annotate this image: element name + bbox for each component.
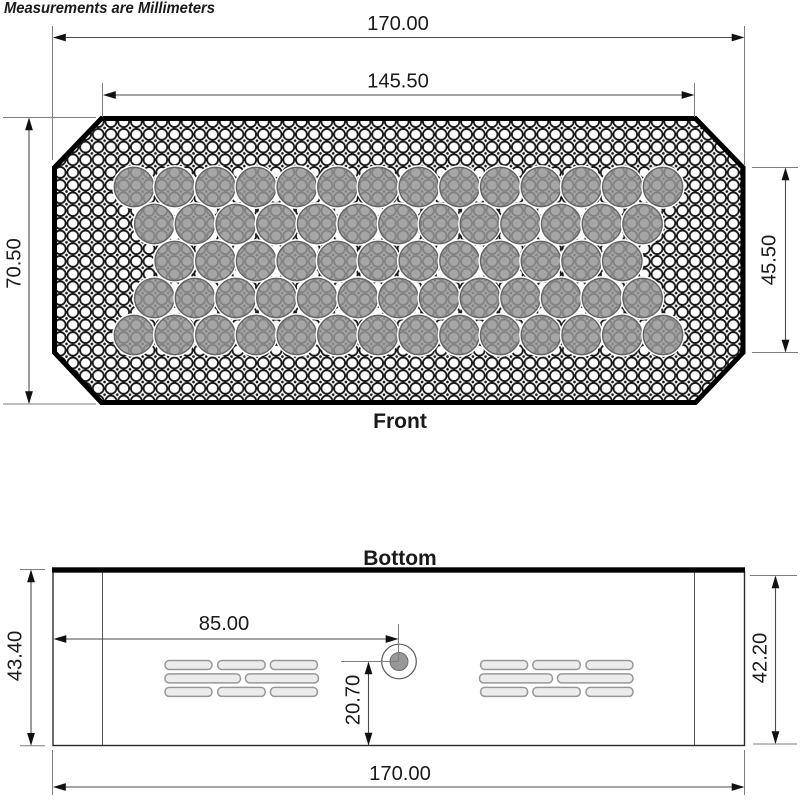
svg-text:45.50: 45.50 <box>759 235 781 286</box>
svg-text:170.00: 170.00 <box>369 763 431 785</box>
svg-text:170.00: 170.00 <box>367 13 429 35</box>
svg-text:Measurements are Millimeters: Measurements are Millimeters <box>4 0 215 17</box>
svg-text:42.20: 42.20 <box>750 633 772 684</box>
svg-text:85.00: 85.00 <box>199 613 250 635</box>
svg-text:Front: Front <box>373 410 427 433</box>
svg-text:70.50: 70.50 <box>4 238 26 289</box>
svg-text:Bottom: Bottom <box>363 547 436 570</box>
svg-text:43.40: 43.40 <box>5 631 27 682</box>
svg-text:145.50: 145.50 <box>367 71 429 93</box>
svg-text:20.70: 20.70 <box>343 675 365 726</box>
